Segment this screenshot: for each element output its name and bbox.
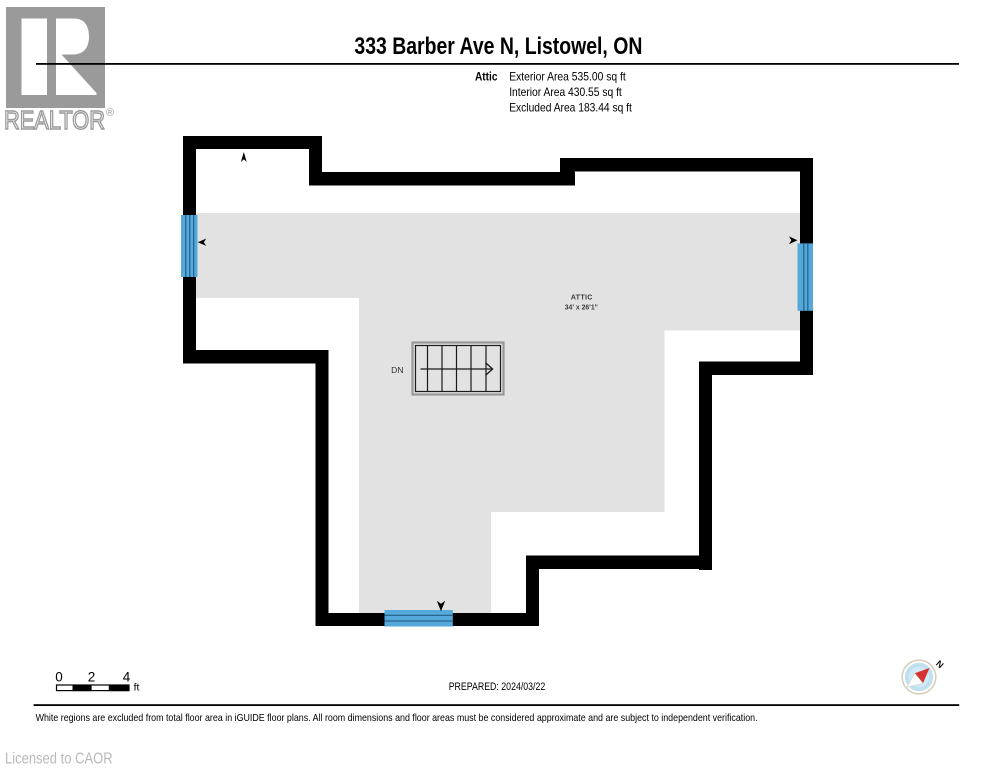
svg-text:0: 0 [55,670,63,685]
svg-text:PREPARED: 2024/03/22: PREPARED: 2024/03/22 [449,681,546,693]
svg-text:ATTIC: ATTIC [571,293,593,302]
svg-text:333 Barber Ave N, Listowel, ON: 333 Barber Ave N, Listowel, ON [354,33,642,60]
svg-text:REALTOR: REALTOR [4,105,105,135]
svg-text:4: 4 [123,670,131,685]
svg-text:Attic: Attic [475,69,498,83]
svg-text:ft: ft [134,682,140,694]
svg-text:Exterior Area 535.00 sq ft: Exterior Area 535.00 sq ft [509,69,626,83]
svg-text:34' x 26'1": 34' x 26'1" [565,302,599,311]
svg-text:Licensed to CAOR: Licensed to CAOR [5,751,113,768]
svg-text:White regions are excluded fro: White regions are excluded from total fl… [36,713,758,724]
svg-text:®: ® [106,107,114,119]
svg-text:2: 2 [88,670,96,685]
svg-text:Interior Area 430.55 sq ft: Interior Area 430.55 sq ft [509,85,622,99]
svg-text:Excluded Area 183.44 sq ft: Excluded Area 183.44 sq ft [509,101,632,115]
svg-text:N: N [934,658,946,670]
svg-text:DN: DN [391,365,403,375]
